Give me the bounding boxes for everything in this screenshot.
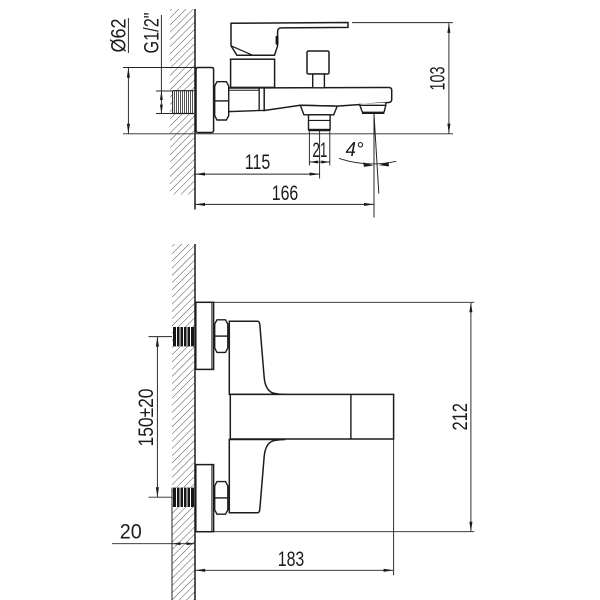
svg-text:21: 21	[312, 139, 327, 162]
svg-text:166: 166	[272, 182, 299, 205]
svg-text:G1/2": G1/2"	[141, 13, 164, 54]
svg-text:4°: 4°	[346, 139, 364, 161]
svg-text:183: 183	[278, 548, 305, 571]
svg-text:103: 103	[427, 67, 450, 91]
svg-text:20: 20	[120, 521, 142, 544]
svg-text:Ø62: Ø62	[108, 19, 131, 53]
svg-text:212: 212	[449, 403, 472, 431]
svg-text:150±20: 150±20	[135, 389, 158, 447]
svg-text:115: 115	[245, 151, 271, 174]
